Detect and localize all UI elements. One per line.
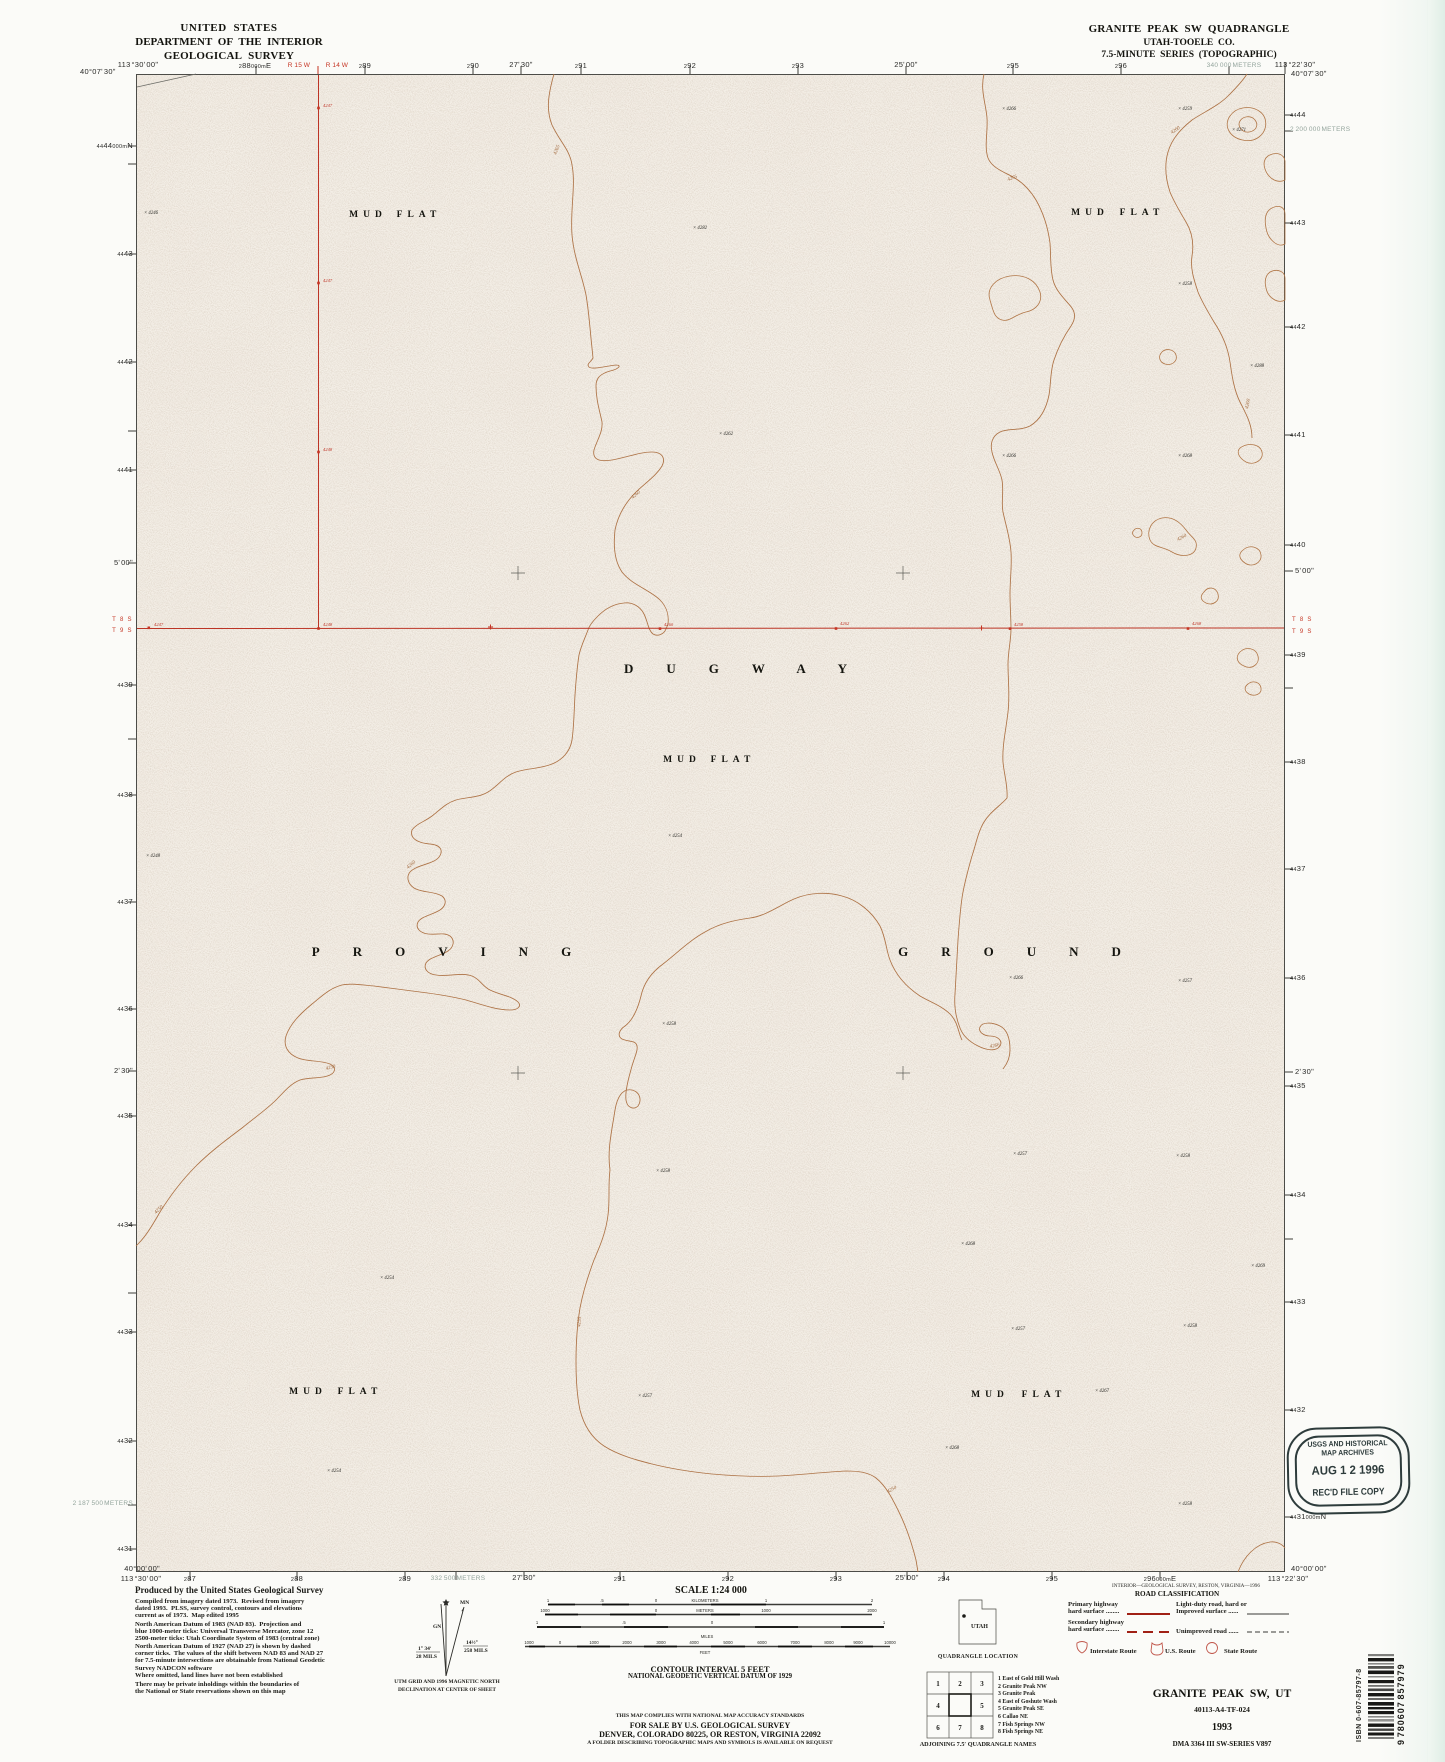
svg-text:× 4248: × 4248 (146, 854, 161, 859)
svg-text:KILOMETERS: KILOMETERS (692, 1598, 719, 1603)
svg-text:× 4262: × 4262 (719, 432, 734, 437)
svg-text:5: 5 (980, 1702, 984, 1710)
svg-text:0: 0 (655, 1598, 658, 1603)
svg-text:9000: 9000 (853, 1640, 863, 1645)
svg-text:× 4268: × 4268 (1178, 454, 1193, 459)
svg-text:MUD: MUD (349, 210, 387, 220)
svg-text:4268: 4268 (1192, 621, 1202, 626)
svg-text:× 4288: × 4288 (1250, 364, 1265, 369)
svg-text:PROVING: PROVING (312, 944, 604, 959)
svg-text:7000: 7000 (790, 1640, 800, 1645)
svg-text:1000: 1000 (761, 1608, 771, 1613)
svg-text:4247: 4247 (323, 278, 333, 283)
svg-text:4260: 4260 (664, 622, 674, 627)
svg-text:MUD: MUD (289, 1387, 327, 1397)
svg-text:GROUND: GROUND (898, 944, 1154, 959)
svg-text:FLAT: FLAT (397, 210, 442, 220)
svg-text:1° 34ʹ: 1° 34ʹ (418, 1645, 432, 1652)
svg-text:1000: 1000 (540, 1608, 550, 1613)
svg-text:× 4266: × 4266 (1002, 107, 1017, 112)
svg-text:4248: 4248 (323, 447, 333, 452)
svg-text:0: 0 (711, 1620, 714, 1625)
svg-text:× 4258: × 4258 (1176, 1154, 1191, 1159)
svg-text:× 4257: × 4257 (1011, 1327, 1026, 1332)
svg-text:FLAT: FLAT (1022, 1390, 1067, 1400)
svg-text:8: 8 (980, 1724, 984, 1732)
svg-text:7: 7 (958, 1724, 962, 1732)
svg-text:5000: 5000 (723, 1640, 733, 1645)
svg-text:× 4258: × 4258 (1178, 1502, 1193, 1507)
svg-text:× 4254: × 4254 (380, 1276, 395, 1281)
svg-text:× 4257: × 4257 (1013, 1152, 1028, 1157)
svg-text:1: 1 (936, 1680, 940, 1688)
svg-text:1000: 1000 (589, 1640, 599, 1645)
svg-text:10000: 10000 (884, 1640, 896, 1645)
svg-text:1: 1 (765, 1598, 768, 1603)
svg-text:2000: 2000 (867, 1608, 877, 1613)
svg-text:FLAT: FLAT (1120, 208, 1165, 218)
svg-text:4247: 4247 (154, 622, 164, 627)
svg-text:× 4257: × 4257 (1178, 979, 1193, 984)
svg-text:2: 2 (871, 1598, 874, 1603)
svg-text:× 4246: × 4246 (144, 211, 159, 216)
svg-text:1: 1 (536, 1620, 539, 1625)
svg-text:DUGWAY: DUGWAY (624, 661, 880, 676)
svg-text:× 4259: × 4259 (1178, 107, 1193, 112)
svg-text:8000: 8000 (824, 1640, 834, 1645)
svg-text:FLAT: FLAT (711, 755, 756, 765)
svg-text:.5: .5 (622, 1620, 626, 1625)
svg-text:× 4266: × 4266 (1009, 976, 1024, 981)
svg-text:MUD: MUD (971, 1390, 1009, 1400)
svg-text:MUD: MUD (663, 755, 701, 765)
svg-text:2: 2 (958, 1680, 962, 1688)
svg-text:× 4282: × 4282 (693, 226, 708, 231)
svg-text:0: 0 (559, 1640, 562, 1645)
svg-text:FEET: FEET (700, 1650, 711, 1655)
svg-text:× 4269: × 4269 (1251, 1264, 1266, 1269)
svg-text:1000: 1000 (524, 1640, 534, 1645)
svg-text:28 MILS: 28 MILS (416, 1654, 437, 1660)
svg-text:× 4268: × 4268 (961, 1242, 976, 1247)
svg-text:1: 1 (883, 1620, 886, 1625)
svg-text:.5: .5 (600, 1598, 604, 1603)
svg-text:× 4268: × 4268 (945, 1446, 960, 1451)
svg-text:4248: 4248 (323, 622, 333, 627)
svg-text:× 4267: × 4267 (1095, 1389, 1110, 1394)
svg-text:4: 4 (936, 1702, 940, 1710)
svg-text:GN: GN (433, 1624, 441, 1630)
svg-text:× 4257: × 4257 (638, 1394, 653, 1399)
svg-text:× 4271: × 4271 (1232, 128, 1246, 133)
svg-text:× 4266: × 4266 (1002, 454, 1017, 459)
svg-text:MUD: MUD (1071, 208, 1109, 218)
svg-text:4000: 4000 (689, 1640, 699, 1645)
svg-text:0: 0 (655, 1608, 658, 1613)
svg-text:4258: 4258 (1014, 622, 1024, 627)
svg-text:× 4258: × 4258 (662, 1022, 677, 1027)
svg-text:METERS: METERS (696, 1608, 714, 1613)
svg-text:UTAH: UTAH (971, 1624, 988, 1630)
svg-text:MILES: MILES (701, 1634, 714, 1639)
svg-text:14½°: 14½° (466, 1639, 478, 1646)
svg-text:3000: 3000 (656, 1640, 666, 1645)
svg-text:2000: 2000 (622, 1640, 632, 1645)
svg-text:3: 3 (980, 1680, 984, 1688)
svg-text:× 4254: × 4254 (668, 834, 683, 839)
svg-text:FLAT: FLAT (338, 1387, 383, 1397)
svg-text:× 4254: × 4254 (327, 1469, 342, 1474)
svg-text:6000: 6000 (757, 1640, 767, 1645)
svg-text:× 4258: × 4258 (656, 1169, 671, 1174)
svg-text:MN: MN (460, 1600, 469, 1606)
svg-text:258 MILS: 258 MILS (464, 1648, 488, 1654)
svg-text:× 4258: × 4258 (1183, 1324, 1198, 1329)
svg-text:6: 6 (936, 1724, 940, 1732)
svg-text:4247: 4247 (323, 103, 333, 108)
svg-text:1: 1 (547, 1598, 550, 1603)
svg-text:4262: 4262 (840, 621, 850, 626)
svg-text:× 4258: × 4258 (1178, 282, 1193, 287)
